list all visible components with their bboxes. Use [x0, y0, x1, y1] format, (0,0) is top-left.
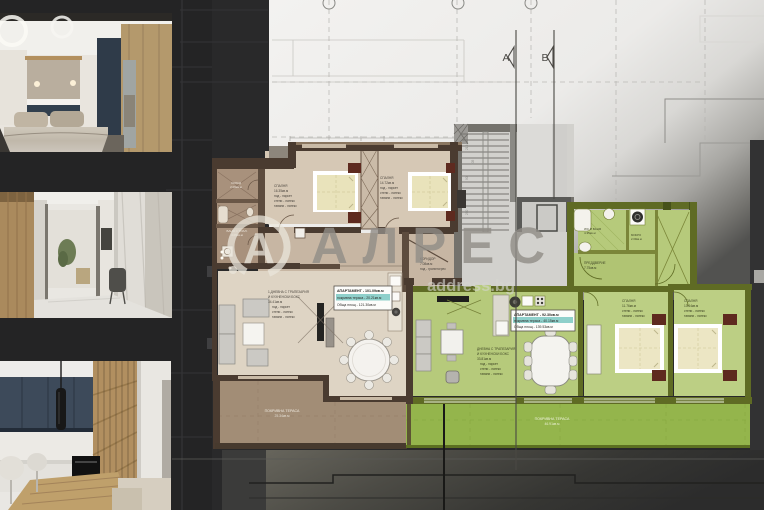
svg-text:АЛРЕС: АЛРЕС: [311, 217, 559, 274]
svg-text:А: А: [243, 224, 275, 273]
svg-text:A: A: [502, 52, 509, 64]
svg-text:address.bg: address.bg: [427, 277, 515, 295]
svg-text:B: B: [541, 52, 548, 64]
